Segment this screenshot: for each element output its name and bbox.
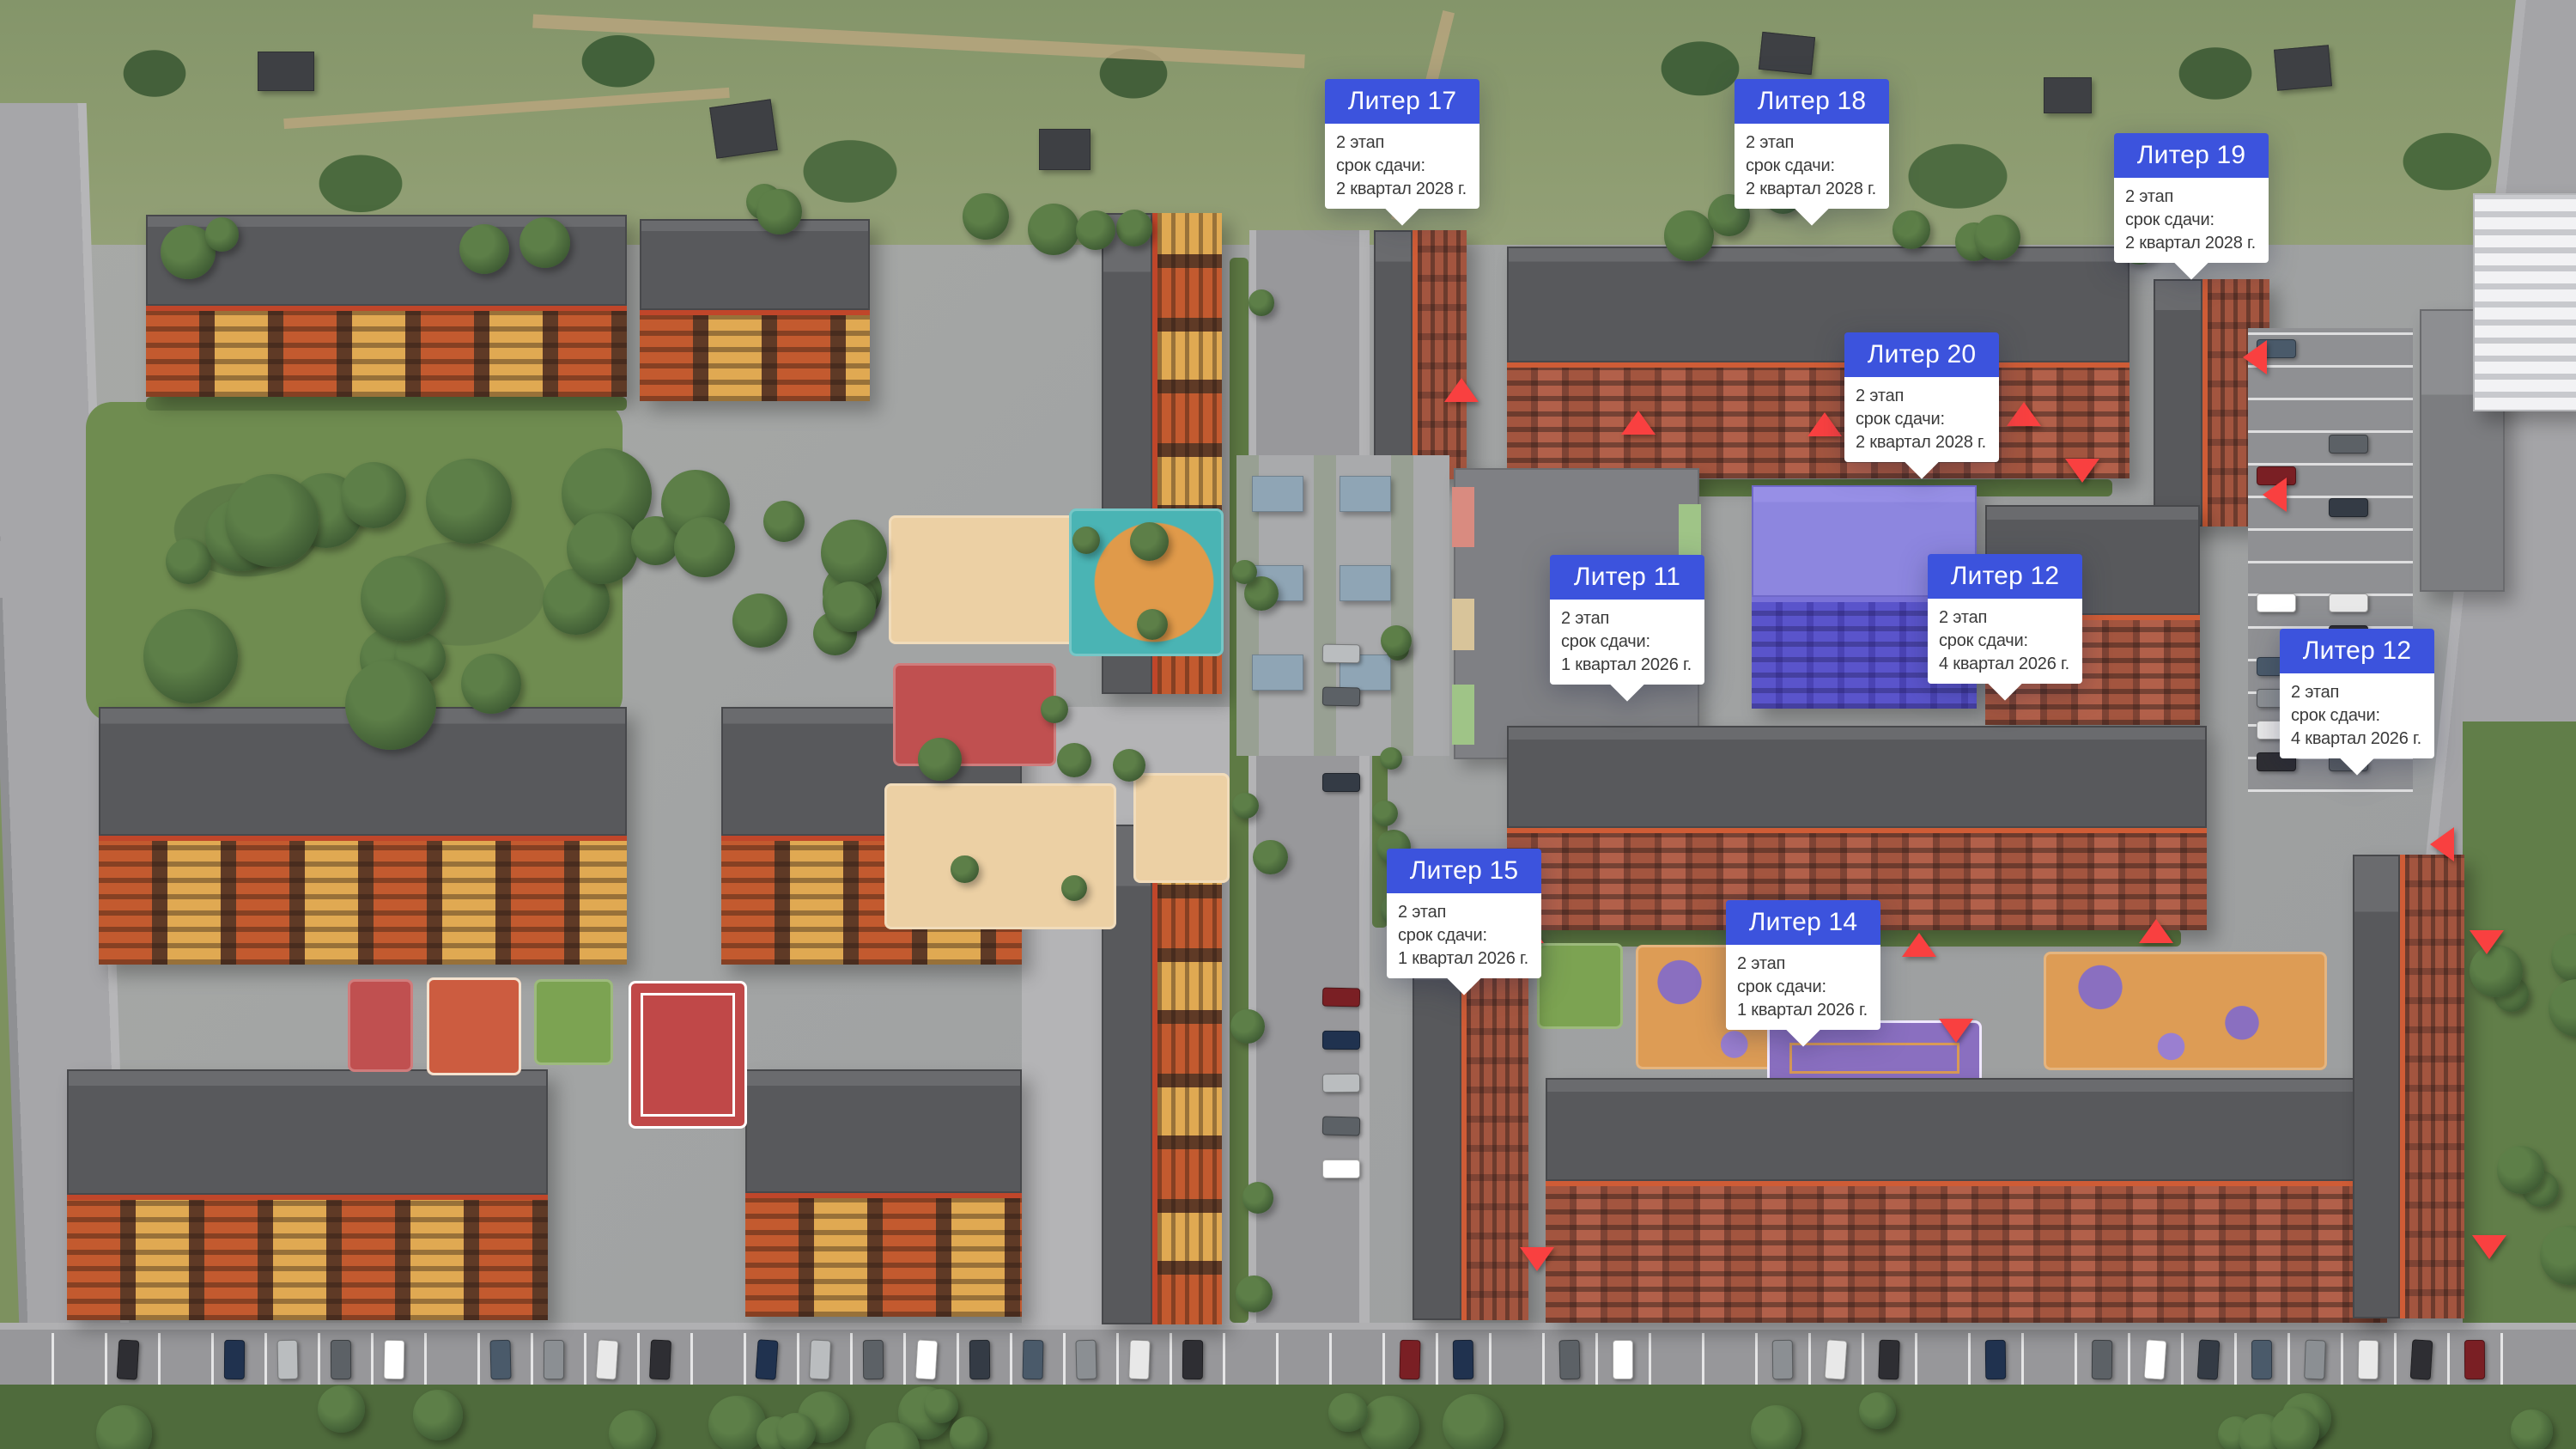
label-liter-18[interactable]: Литер 18 2 этапсрок сдачи:2 квартал 2028… bbox=[1735, 79, 1889, 209]
building-label-info: 2 этапсрок сдачи:1 квартал 2026 г. bbox=[1550, 600, 1704, 685]
building-label-title: Литер 15 bbox=[1387, 849, 1541, 893]
label-liter-12-a[interactable]: Литер 12 2 этапсрок сдачи:4 квартал 2026… bbox=[1928, 554, 2082, 684]
label-liter-15[interactable]: Литер 15 2 этапсрок сдачи:1 квартал 2026… bbox=[1387, 849, 1541, 978]
building-label-title: Литер 11 bbox=[1550, 555, 1704, 600]
building-label-title: Литер 17 bbox=[1325, 79, 1479, 124]
building-label-title: Литер 14 bbox=[1726, 900, 1880, 945]
label-liter-11[interactable]: Литер 11 2 этапсрок сдачи:1 квартал 2026… bbox=[1550, 555, 1704, 685]
building-label-info: 2 этапсрок сдачи:2 квартал 2028 г. bbox=[1844, 377, 1999, 462]
building-label-title: Литер 12 bbox=[1928, 554, 2082, 599]
label-liter-14[interactable]: Литер 14 2 этапсрок сдачи:1 квартал 2026… bbox=[1726, 900, 1880, 1030]
building-label-title: Литер 12 bbox=[2280, 629, 2434, 673]
building-label-info: 2 этапсрок сдачи:1 квартал 2026 г. bbox=[1387, 893, 1541, 978]
building-label-info: 2 этапсрок сдачи:2 квартал 2028 г. bbox=[1325, 124, 1479, 209]
label-liter-19[interactable]: Литер 19 2 этапсрок сдачи:2 квартал 2028… bbox=[2114, 133, 2269, 263]
label-liter-12-b[interactable]: Литер 12 2 этапсрок сдачи:4 квартал 2026… bbox=[2280, 629, 2434, 758]
label-liter-20[interactable]: Литер 20 2 этапсрок сдачи:2 квартал 2028… bbox=[1844, 332, 1999, 462]
labels-layer: Литер 17 2 этапсрок сдачи:2 квартал 2028… bbox=[0, 0, 2576, 1449]
building-label-title: Литер 20 bbox=[1844, 332, 1999, 377]
label-liter-17[interactable]: Литер 17 2 этапсрок сдачи:2 квартал 2028… bbox=[1325, 79, 1479, 209]
masterplan-scene: Литер 17 2 этапсрок сдачи:2 квартал 2028… bbox=[0, 0, 2576, 1449]
building-label-info: 2 этапсрок сдачи:4 квартал 2026 г. bbox=[2280, 673, 2434, 758]
building-label-info: 2 этапсрок сдачи:2 квартал 2028 г. bbox=[1735, 124, 1889, 209]
building-label-title: Литер 18 bbox=[1735, 79, 1889, 124]
building-label-info: 2 этапсрок сдачи:4 квартал 2026 г. bbox=[1928, 599, 2082, 684]
building-label-title: Литер 19 bbox=[2114, 133, 2269, 178]
building-label-info: 2 этапсрок сдачи:2 квартал 2028 г. bbox=[2114, 178, 2269, 263]
building-label-info: 2 этапсрок сдачи:1 квартал 2026 г. bbox=[1726, 945, 1880, 1030]
